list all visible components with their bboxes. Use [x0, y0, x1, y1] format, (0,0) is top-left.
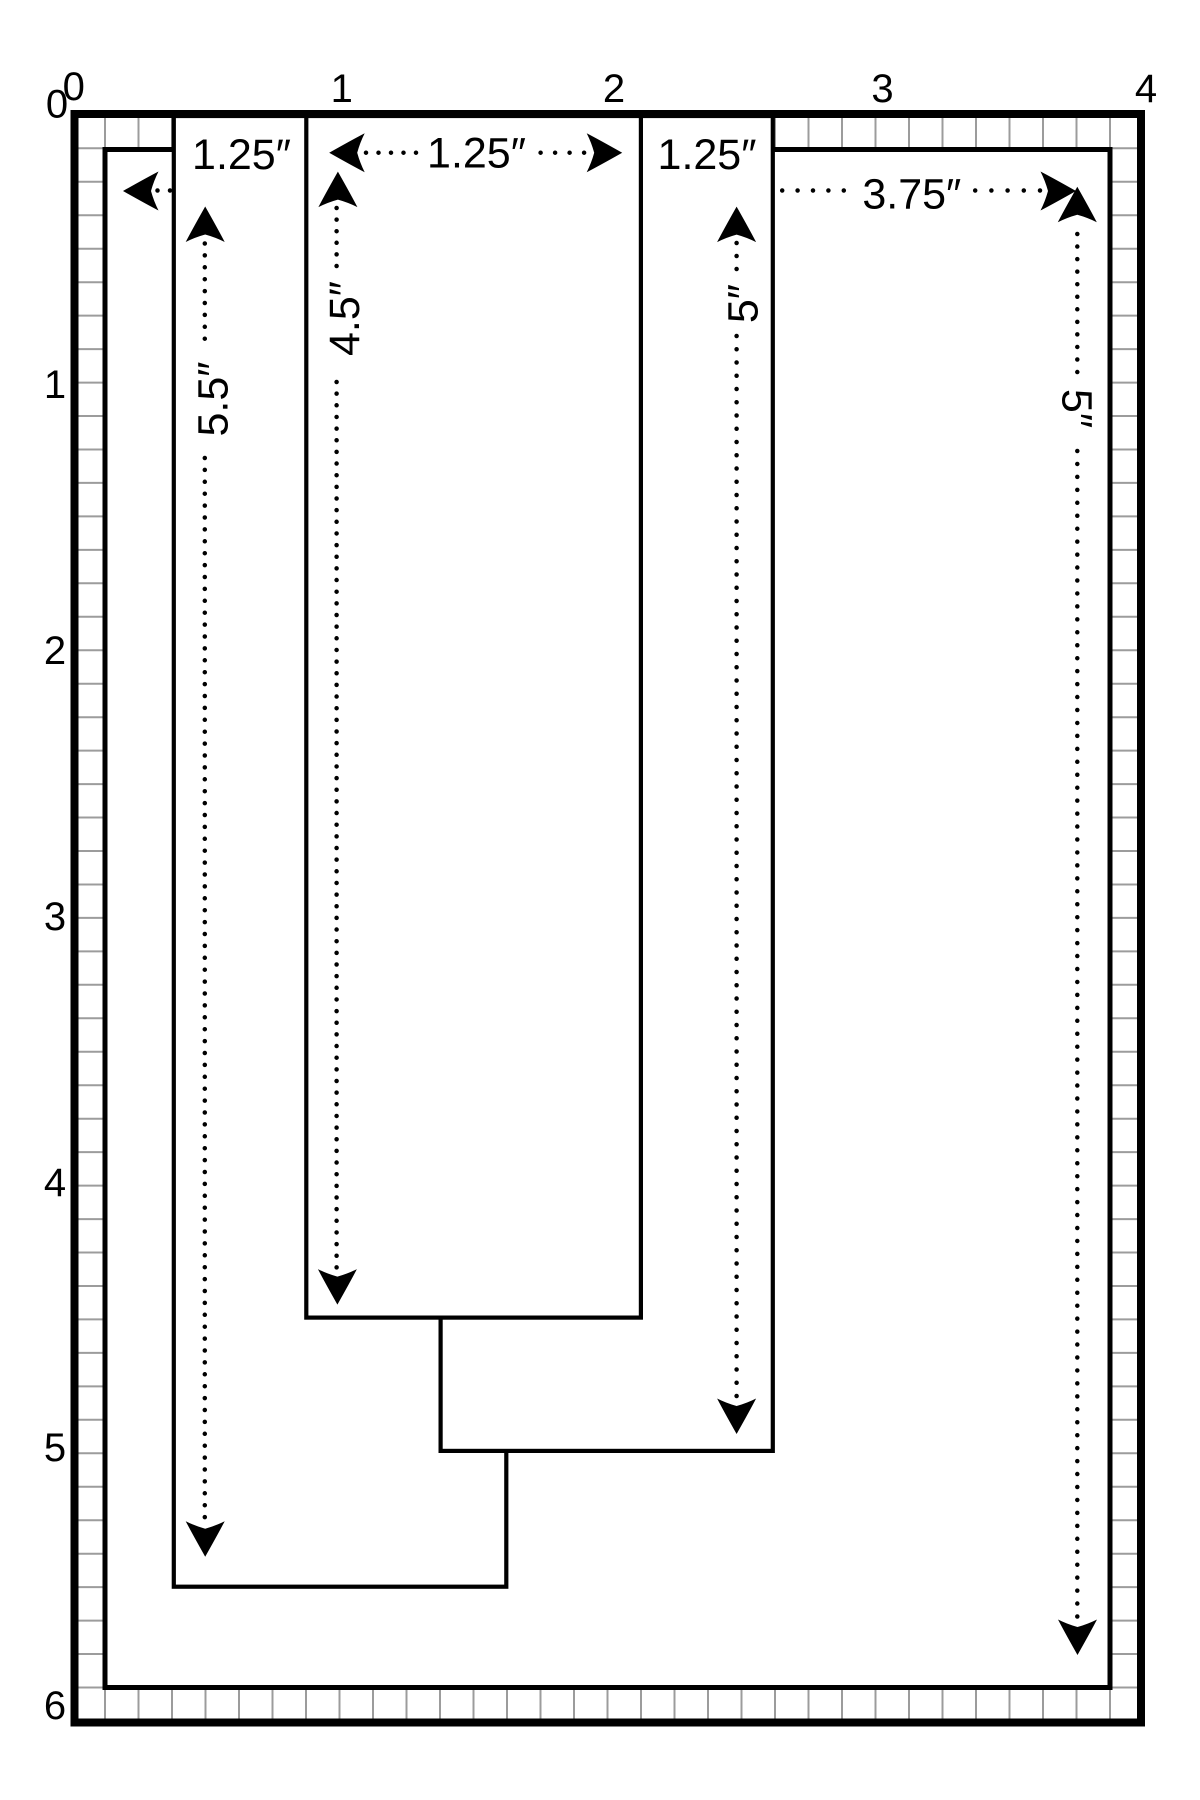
svg-text:3: 3	[871, 67, 893, 111]
svg-text:2: 2	[603, 67, 625, 111]
svg-text:4: 4	[1135, 67, 1157, 111]
svg-text:4.5″: 4.5″	[321, 281, 369, 356]
svg-text:1.25″: 1.25″	[427, 129, 526, 177]
svg-text:1.25″: 1.25″	[192, 131, 291, 179]
svg-text:1.25″: 1.25″	[658, 131, 757, 179]
svg-text:3: 3	[44, 895, 66, 939]
svg-text:1: 1	[44, 363, 66, 407]
svg-text:5: 5	[44, 1426, 66, 1470]
svg-text:2: 2	[44, 629, 66, 673]
svg-text:5″: 5″	[1053, 389, 1101, 428]
svg-text:1: 1	[331, 67, 353, 111]
svg-text:6: 6	[44, 1684, 66, 1728]
svg-text:3.75″: 3.75″	[862, 171, 961, 219]
svg-text:5″: 5″	[720, 284, 768, 323]
svg-text:5.5″: 5.5″	[190, 362, 238, 437]
svg-text:4: 4	[44, 1161, 66, 1205]
svg-text:0: 0	[46, 83, 68, 127]
